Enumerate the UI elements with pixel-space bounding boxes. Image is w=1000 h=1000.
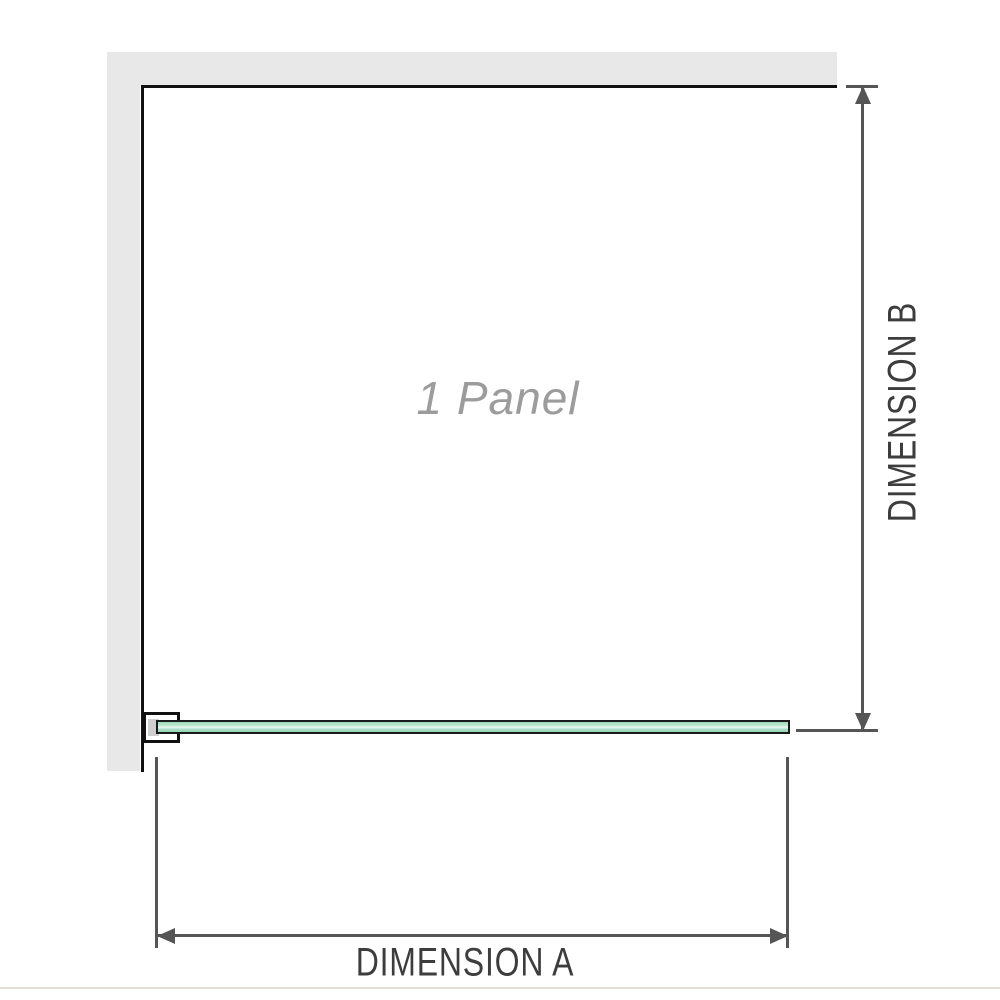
glass-panel-plan-view [156, 720, 790, 734]
dimension-b-label: DIMENSION B [881, 302, 926, 522]
dimension-a-line [158, 934, 787, 937]
dimension-b-line [861, 87, 864, 730]
wall-top-strip [107, 52, 837, 85]
down-arrowhead-icon [855, 713, 871, 731]
panel-outline-top-edge [141, 85, 837, 88]
shower-panel-diagram: 1 Panel DIMENSION A DIMENSION B [0, 0, 1000, 1000]
panel-count-label: 1 Panel [416, 371, 579, 425]
image-edge-line [0, 987, 1000, 989]
extension-line-left [155, 757, 158, 948]
right-arrowhead-icon [770, 928, 788, 944]
wall-left-strip [107, 52, 140, 771]
dimension-a-label: DIMENSION A [356, 941, 575, 986]
left-arrowhead-icon [157, 928, 175, 944]
panel-outline-left-edge [141, 85, 144, 772]
extension-line-right [786, 757, 789, 948]
up-arrowhead-icon [855, 86, 871, 104]
